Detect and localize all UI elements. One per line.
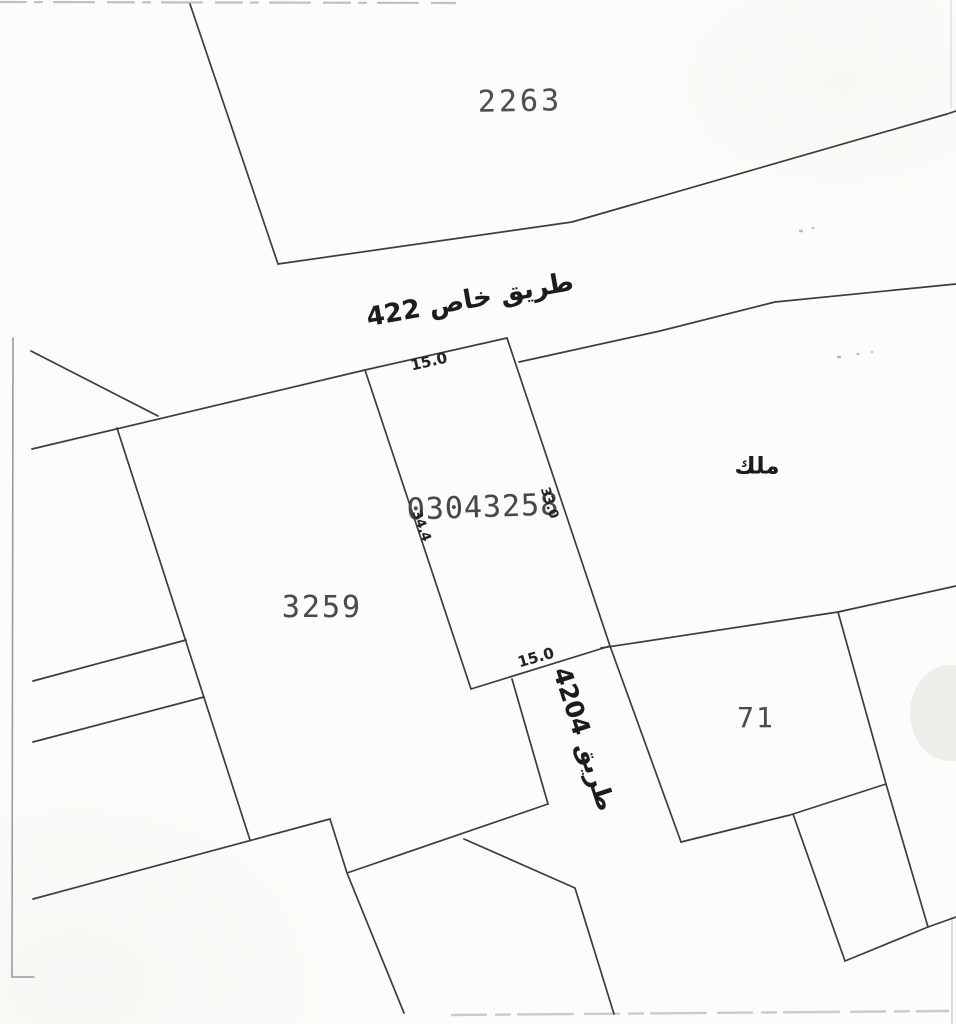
parcel-03043258-label: 03043258 — [406, 490, 559, 525]
road-422-label: طريق خاص 422 — [364, 269, 575, 331]
road-4204-label: طريق 4204 — [549, 664, 619, 814]
parcel-3259-label: 3259 — [282, 593, 362, 623]
dim-top-width-label: 15.0 — [409, 351, 448, 374]
dim-bottom-width-label: 15.0 — [516, 646, 556, 671]
survey-map: 2263طريق خاص 42215.00304325834.433.0ملك3… — [0, 0, 956, 1024]
melk-ownership-label: ملك — [734, 456, 779, 479]
parcel-2263-label: 2263 — [478, 86, 563, 117]
survey-labels-layer: 2263طريق خاص 42215.00304325834.433.0ملك3… — [0, 0, 956, 1024]
parcel-71-label: 71 — [737, 704, 775, 732]
